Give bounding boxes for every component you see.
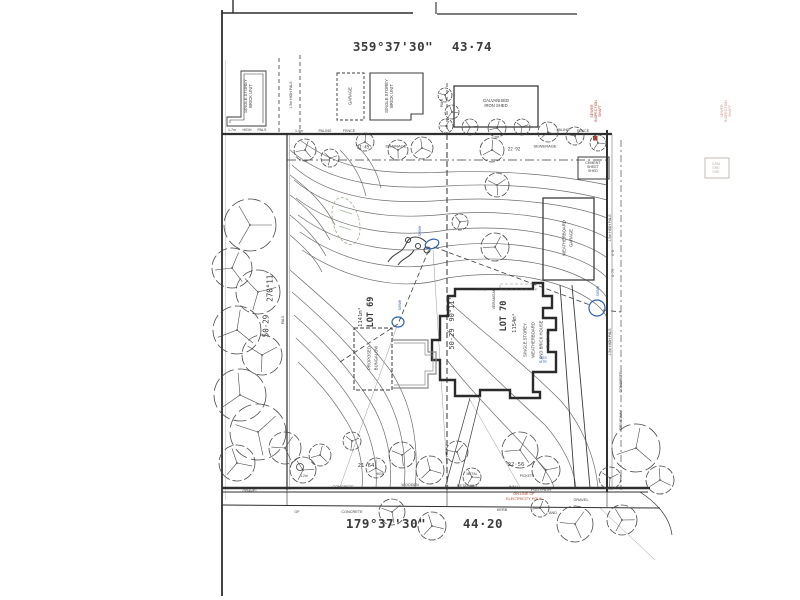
weatherboard-garage: WEATHERBOARD GARAGE: [561, 220, 574, 256]
neighbour-unit-mid: SINGLE STOREY BRICK UNIT: [385, 79, 395, 113]
fence-label: HIGH: [376, 473, 384, 477]
lot-70-label: LOT 70: [500, 301, 510, 332]
fence-label: 1.4m: [295, 129, 303, 133]
patio-label: PATIO: [475, 288, 486, 293]
easement-dim-left: 21·45: [357, 146, 370, 151]
surface-label-driveway: DRIVEWAY: [619, 410, 623, 430]
annotation-layer: 359°37'30"43·74179°37'30"44·20270°11'50·…: [0, 0, 800, 600]
fence-label: 1.7m: [228, 128, 236, 132]
cement-shed-ghost: CEM SHE SHE: [712, 162, 720, 174]
fence-label: PALS: [258, 128, 267, 132]
street-strip-label: GRAVEL: [242, 489, 257, 493]
fence-label: PALING: [319, 129, 332, 133]
fence-label: HIGH: [243, 128, 252, 132]
fence-label: FENCE: [343, 129, 355, 133]
distance-top: 43·74: [452, 40, 492, 54]
bearing-bottom: 179°37'30": [346, 517, 426, 531]
gas-meter-label: GAS MTR: [539, 357, 546, 365]
easement-dim-right: 22·92: [508, 148, 521, 153]
neighbour-unit-left: SINGLE STOREY BRICK UNIT: [244, 79, 254, 113]
fence-label: 1.5m HIGH PALS: [608, 214, 612, 241]
street-strip-label: WALL: [509, 485, 519, 489]
electricity-pole-note: ON LINE OF ELECTRICITY POLE: [506, 492, 542, 502]
fence-label: PICKETS: [520, 475, 535, 479]
fence-label: 1.2m: [300, 475, 308, 479]
distance-bottom: 44·20: [463, 517, 503, 531]
cement-sheet-shed: CEMENT SHEET SHED: [585, 161, 600, 173]
fence-label: PALS: [282, 316, 286, 324]
house-label: SINGLE STOREY WEATHERBOARD AND BRICK HOU…: [521, 321, 552, 360]
street-strip-label: OF: [294, 510, 299, 514]
neighbour-garage: GARAGE: [349, 87, 354, 105]
bearing-top: 359°37'30": [353, 40, 433, 54]
survey-plan-page: 359°37'30"43·74179°37'30"44·20270°11'50·…: [0, 0, 800, 600]
lot-69-label: LOT 69: [367, 297, 377, 328]
fence-label: FENCE: [577, 129, 589, 133]
fence-label: PALS: [441, 99, 445, 107]
street-strip-label: WOODEN: [401, 483, 419, 487]
bearing-middle: 90°11': [448, 296, 456, 321]
spot-level: 4·0: [612, 250, 616, 256]
street-strip-label: GRAVEL: [573, 498, 588, 502]
distance-middle: 50·29: [448, 328, 456, 349]
frontage-dim-left: 21·64: [358, 463, 375, 469]
sewer-inspection-shaft: SEWER INSPECTION SHAFT: [590, 100, 602, 122]
street-strip-label: FOOTPATH: [531, 488, 551, 492]
street-strip-label: RETAINING: [457, 484, 477, 488]
spot-level: 4·75: [612, 269, 616, 277]
proposed-bungalow: PROPOSED BUNGALOW: [366, 346, 379, 370]
fence-label: PALING: [557, 128, 570, 132]
verandah-label: VERANDAH: [492, 288, 496, 309]
fence-label: 1.5m HIGH PALS: [289, 81, 293, 108]
lot-70-area: 1154m²: [512, 313, 518, 333]
fence-label: 1.5m HIGH PALS: [608, 328, 612, 355]
galvanised-iron-shed: GALVANISED IRON SHED: [483, 99, 509, 109]
surface-label-concrete: CONCRETE: [619, 371, 623, 392]
lot-69-area: 1141m²: [358, 307, 364, 327]
easement-drainage: DRAINAGE: [386, 145, 407, 150]
distance-west: 50·29: [263, 315, 272, 338]
street-strip-label: CONCRETE: [332, 485, 353, 489]
easement-sewerage: SEWERAGE: [533, 145, 556, 150]
sewer-manhole-label: SWMH: [419, 226, 423, 237]
street-strip-label: KERB: [497, 508, 507, 512]
street-strip-label: CONCRETE: [341, 510, 362, 514]
fence-label: METAL: [466, 473, 477, 477]
street-strip-label: AND: [549, 511, 557, 515]
sewer-manhole-label: SWMH: [399, 300, 403, 311]
frontage-dim-right: 22·56: [508, 462, 525, 468]
sewer-shaft-ghost: SEWER INSPECTION SHAFT: [720, 100, 732, 122]
sewer-manhole-label: SWMH: [597, 286, 601, 297]
bearing-west: 270°11': [267, 270, 276, 302]
